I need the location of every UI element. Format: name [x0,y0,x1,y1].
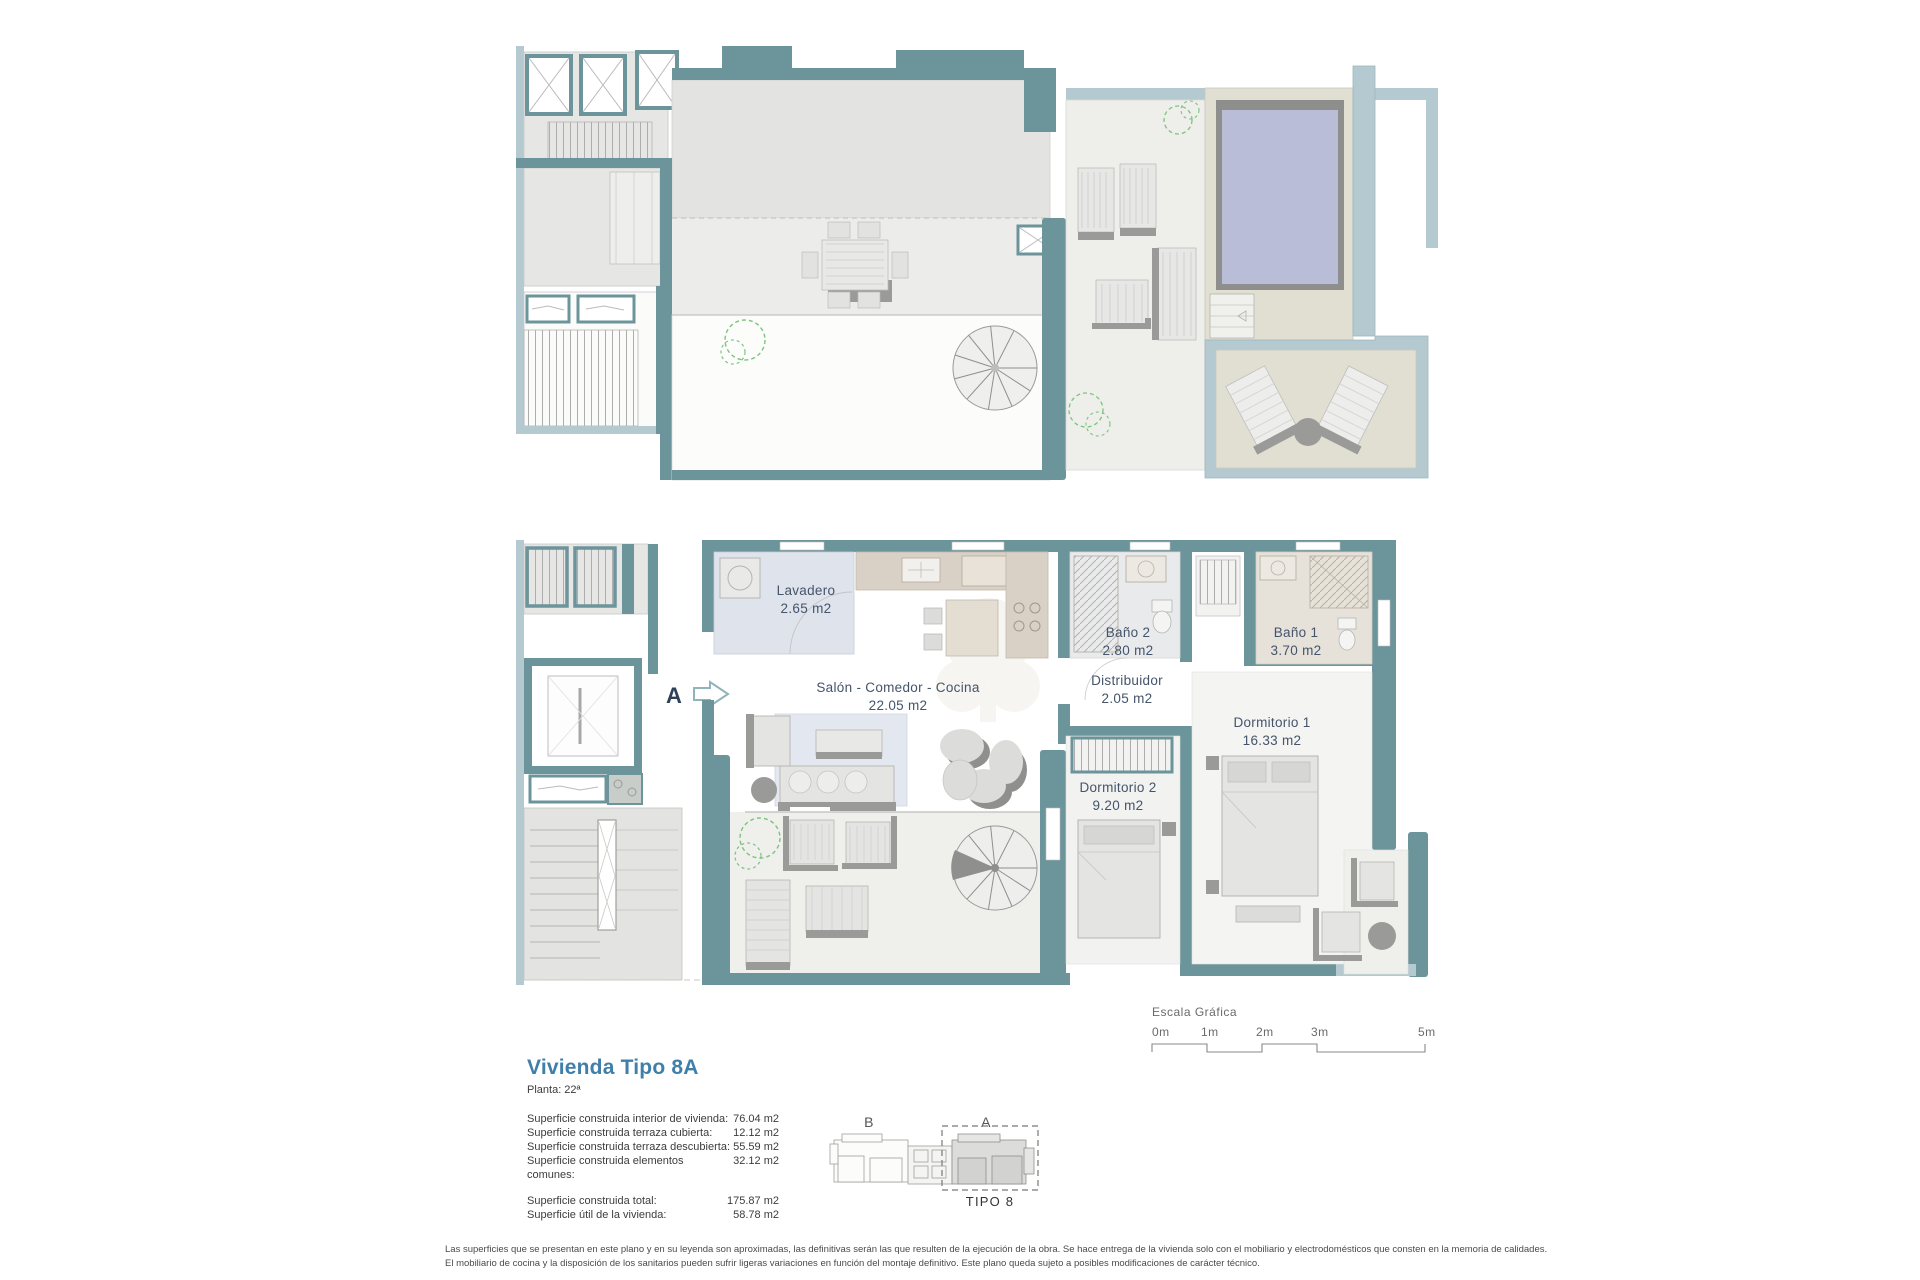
closet-icon [527,548,567,606]
stair-icon [548,122,652,164]
tv-bench-icon [816,730,882,759]
disclaimer-line-1: Las superficies que se presentan en este… [445,1243,1530,1257]
disclaimer: Las superficies que se presentan en este… [445,1243,1530,1270]
area-label: Superficie construida terraza cubierta: [527,1126,712,1140]
toilet-icon [1152,600,1172,633]
room-area: 2.05 m2 [1102,691,1153,706]
area-label: Superficie construida interior de vivien… [527,1112,728,1126]
room-bano1: Baño 1 3.70 m2 [1256,552,1372,664]
stair-icon [524,808,700,980]
area-row: Superficie construida elementos comunes:… [527,1154,779,1182]
room-area: 2.80 m2 [1103,643,1154,658]
area-label: Superficie construida terraza descubiert… [527,1140,730,1154]
lounger-icon [1078,168,1114,240]
scale-tick: 5m [1418,1025,1436,1039]
sofa-icon [778,766,896,811]
sink-icon [1126,556,1166,582]
area-label: Superficie construida total: [527,1194,657,1208]
pool [1216,100,1344,290]
room-bano2: Baño 2 2.80 m2 [1070,552,1180,658]
disclaimer-line-2: El mobiliario de cocina y la disposición… [445,1257,1530,1271]
roof-terrace-plan [516,46,1438,480]
scale-tick: 3m [1311,1025,1329,1039]
area-table: Superficie construida interior de vivien… [527,1112,827,1222]
closet-icon [1072,738,1172,772]
side-table-icon [1368,922,1396,950]
area-value: 175.87 m2 [727,1194,779,1208]
section-marker-letter: A [666,683,682,708]
room-name: Salón - Comedor - Cocina [816,680,979,695]
salon-terrace [730,809,1040,973]
room-name: Distribuidor [1091,673,1163,688]
side-table-icon [1294,418,1322,446]
title-block: Vivienda Tipo 8A Planta: 22ª Superficie … [527,1056,827,1222]
room-lavadero: Lavadero 2.65 m2 [714,552,854,654]
bench-icon [1236,906,1300,922]
scale-tick: 1m [1201,1025,1219,1039]
room-area: 3.70 m2 [1271,643,1322,658]
area-total-row: Superficie útil de la vivienda: 58.78 m2 [527,1208,779,1222]
sink-icon [578,296,634,322]
sink-icon [527,296,569,322]
room-name: Lavadero [777,583,836,598]
duct-icon [530,774,642,804]
room-name: Dormitorio 1 [1233,715,1310,730]
toilet-icon [1338,618,1356,650]
plan-subtitle: Planta: 22ª [527,1084,827,1096]
scale-tick: 0m [1152,1025,1170,1039]
elevator-icon [527,56,571,114]
apartment-plan: A [516,540,1428,985]
terrace-chair-icon [842,816,894,866]
key-plan-label-a: A [981,1114,991,1130]
room-name: Baño 2 [1106,625,1151,640]
key-plan-core [908,1146,952,1184]
elevator-icon [581,56,625,114]
elevator-icon [528,662,638,770]
area-value: 12.12 m2 [733,1126,779,1140]
kitchen [856,552,1048,658]
terrace-chair-icon [1354,858,1398,904]
lounger-icon [1152,248,1196,340]
stair-icon [524,330,638,426]
room-area: 22.05 m2 [869,698,928,713]
roof-pool-terrace [1066,66,1438,478]
lounger-icon [806,886,868,938]
elevator-icon [637,52,677,108]
armchair-icon [1092,280,1148,326]
lounge-chairs-icon [940,729,1027,809]
lounger-icon [746,880,790,970]
key-plan-unit-a [952,1134,1034,1184]
lounger-icon [1120,164,1156,236]
key-plan: B A TIPO 8 [830,1114,1038,1209]
plan-title: Vivienda Tipo 8A [527,1056,827,1080]
area-row: Superficie construida terraza cubierta: … [527,1126,779,1140]
room-area: 16.33 m2 [1243,733,1302,748]
area-value: 76.04 m2 [733,1112,779,1126]
side-table-icon [751,777,777,803]
scale-bar: Escala Gráfica 0m 1m 2m 3m 5m [1152,1005,1436,1052]
roof-lower-deck [1205,336,1428,478]
spiral-stair-icon [953,326,1037,410]
area-row: Superficie construida interior de vivien… [527,1112,779,1126]
room-area: 9.20 m2 [1093,798,1144,813]
floor-plan-sheet: A [0,0,1920,1280]
room-distribuidor: Distribuidor 2.05 m2 [1085,658,1163,706]
scale-tick: 2m [1256,1025,1274,1039]
area-total-row: Superficie construida total: 175.87 m2 [527,1194,779,1208]
terrace-chair-icon [1316,908,1362,958]
key-plan-label-b: B [864,1114,874,1130]
area-label: Superficie útil de la vivienda: [527,1208,666,1222]
area-label: Superficie construida elementos comunes: [527,1154,733,1182]
washer-icon [720,558,760,598]
pool-steps-icon [1210,294,1254,338]
area-row: Superficie construida terraza descubiert… [527,1140,779,1154]
armchair-icon [746,714,790,768]
terrace-chair-icon [786,816,838,868]
closet-icon [1196,556,1240,616]
sink-icon [1260,556,1296,580]
core-left [516,540,700,985]
area-value: 58.78 m2 [733,1208,779,1222]
bed-icon [1206,756,1318,896]
closet-icon [575,548,615,606]
room-area: 2.65 m2 [781,601,832,616]
key-plan-caption: TIPO 8 [966,1194,1014,1209]
area-value: 55.59 m2 [733,1140,779,1154]
room-name: Dormitorio 2 [1079,780,1156,795]
scale-bar-title: Escala Gráfica [1152,1005,1237,1019]
room-dormitorio2: Dormitorio 2 9.20 m2 [1066,736,1180,964]
scale-bar-rule [1152,1044,1425,1052]
room-name: Baño 1 [1274,625,1319,640]
area-value: 32.12 m2 [733,1154,779,1182]
shower-icon [1310,556,1368,608]
section-marker: A [666,682,728,708]
key-plan-unit-b [830,1134,908,1182]
